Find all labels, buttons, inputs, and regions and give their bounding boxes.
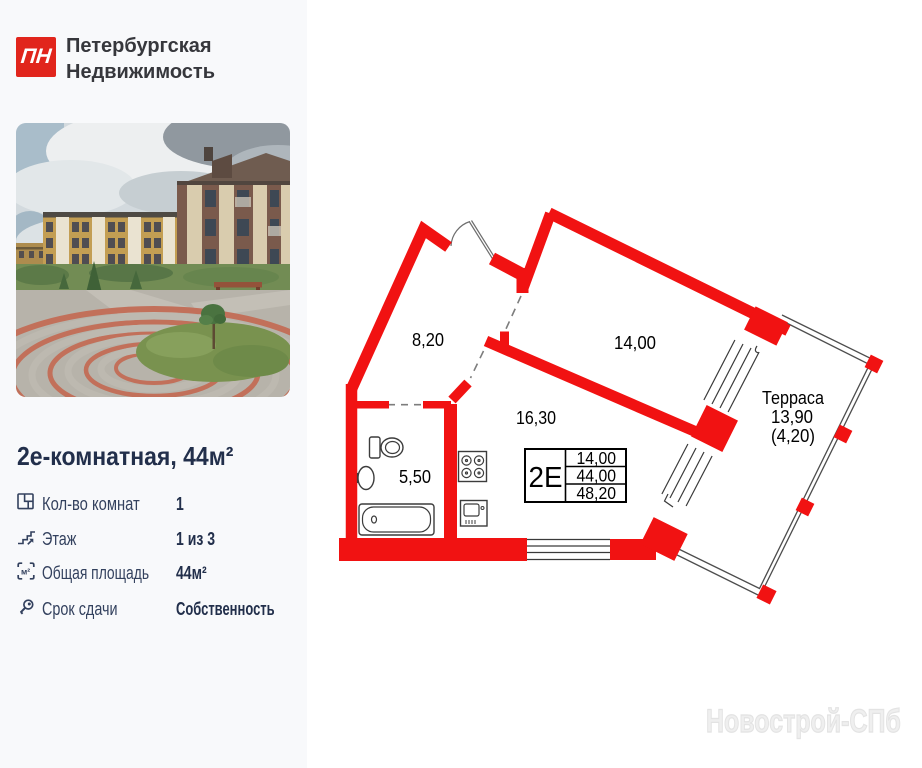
- svg-text:13,90: 13,90: [771, 407, 813, 427]
- svg-text:48,20: 48,20: [577, 483, 617, 503]
- svg-text:2Е: 2Е: [529, 462, 563, 494]
- svg-text:5,50: 5,50: [399, 467, 431, 487]
- svg-text:16,30: 16,30: [516, 408, 556, 428]
- svg-text:8,20: 8,20: [412, 330, 444, 350]
- svg-text:(4,20): (4,20): [771, 426, 815, 446]
- svg-text:Терраса: Терраса: [762, 388, 825, 408]
- svg-text:14,00: 14,00: [614, 333, 656, 353]
